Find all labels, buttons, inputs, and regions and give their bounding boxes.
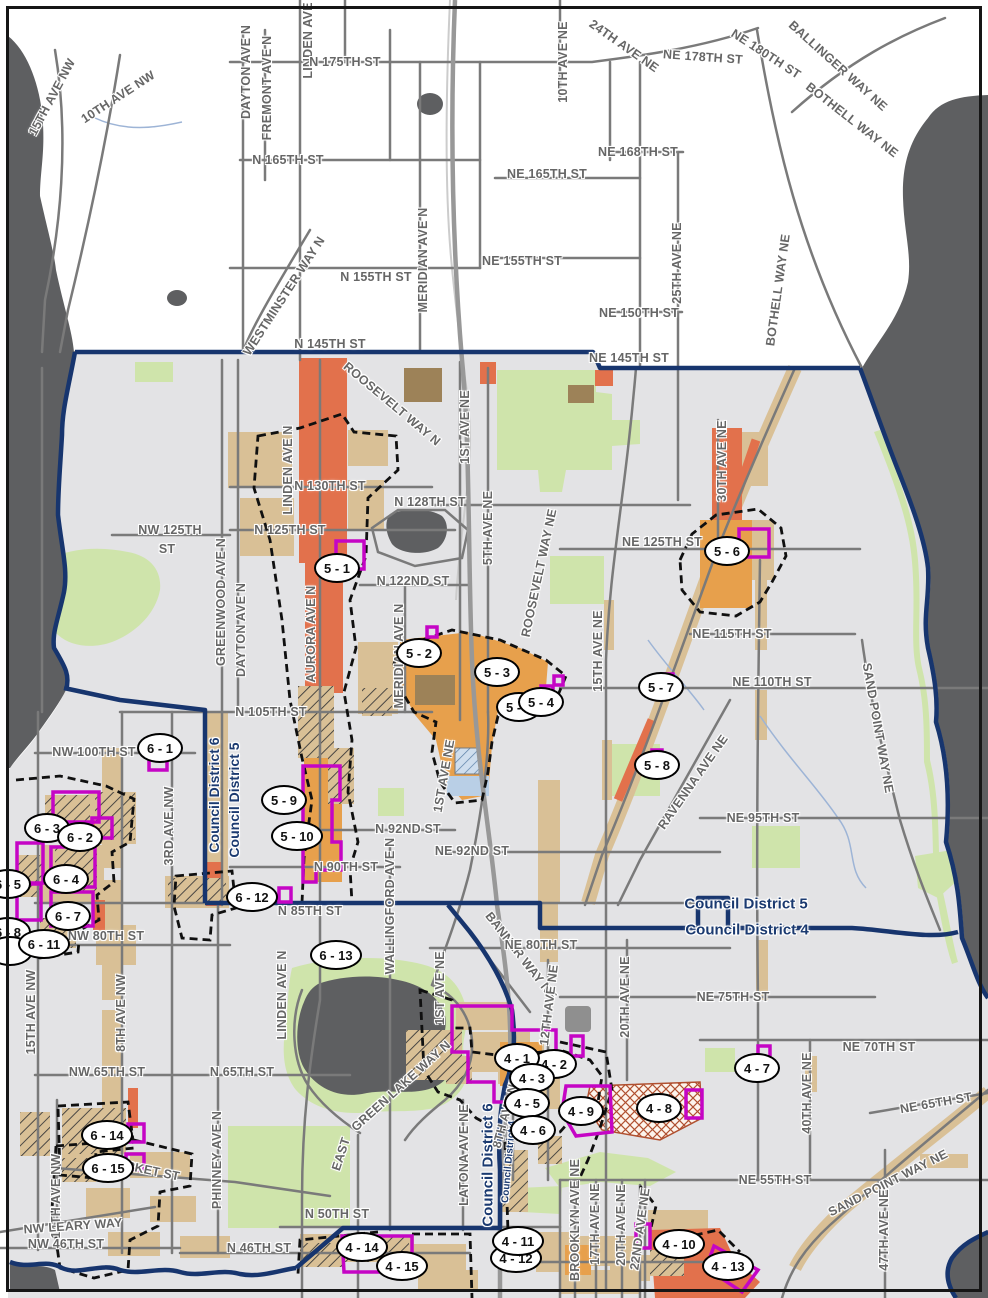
site-marker-5-3[interactable]: 5 - 3: [474, 657, 520, 687]
site-marker-4-10[interactable]: 4 - 10: [653, 1229, 705, 1259]
site-marker-4-11[interactable]: 4 - 11: [492, 1226, 544, 1256]
site-marker-6-12[interactable]: 6 - 12: [226, 882, 278, 912]
site-marker-5-10[interactable]: 5 - 10: [271, 821, 323, 851]
site-marker-4-15[interactable]: 4 - 15: [376, 1251, 428, 1281]
site-marker-6-13[interactable]: 6 - 13: [310, 940, 362, 970]
site-marker-6-1[interactable]: 6 - 1: [137, 733, 183, 763]
site-marker-5-2[interactable]: 5 - 2: [396, 638, 442, 668]
site-marker-5-1[interactable]: 5 - 1: [314, 553, 360, 583]
site-marker-4-13[interactable]: 4 - 13: [702, 1251, 754, 1281]
site-marker-6-11[interactable]: 6 - 11: [18, 929, 70, 959]
site-marker-5-7[interactable]: 5 - 7: [638, 672, 684, 702]
site-marker-4-5[interactable]: 4 - 5: [504, 1088, 550, 1118]
site-marker-6-2[interactable]: 6 - 2: [57, 822, 103, 852]
site-marker-6-5[interactable]: 6 - 5: [0, 869, 31, 899]
site-marker-5-4[interactable]: 5 - 4: [518, 687, 564, 717]
site-marker-5-9[interactable]: 5 - 9: [261, 785, 307, 815]
site-marker-5-8[interactable]: 5 - 8: [634, 750, 680, 780]
site-marker-5-6[interactable]: 5 - 6: [704, 536, 750, 566]
site-marker-6-7[interactable]: 6 - 7: [45, 901, 91, 931]
site-marker-6-14[interactable]: 6 - 14: [81, 1120, 133, 1150]
site-marker-4-7[interactable]: 4 - 7: [734, 1053, 780, 1083]
site-marker-6-15[interactable]: 6 - 15: [82, 1153, 134, 1183]
site-marker-4-8[interactable]: 4 - 8: [636, 1093, 682, 1123]
site-marker-4-6[interactable]: 4 - 6: [510, 1115, 556, 1145]
site-marker-4-9[interactable]: 4 - 9: [558, 1096, 604, 1126]
site-marker-layer: 6 - 36 - 26 - 56 - 46 - 76 - 86 - 116 - …: [0, 0, 988, 1298]
map-canvas[interactable]: 15TH AVE NW10TH AVE NWDAYTON AVE NFREMON…: [0, 0, 988, 1298]
site-marker-6-4[interactable]: 6 - 4: [43, 864, 89, 894]
